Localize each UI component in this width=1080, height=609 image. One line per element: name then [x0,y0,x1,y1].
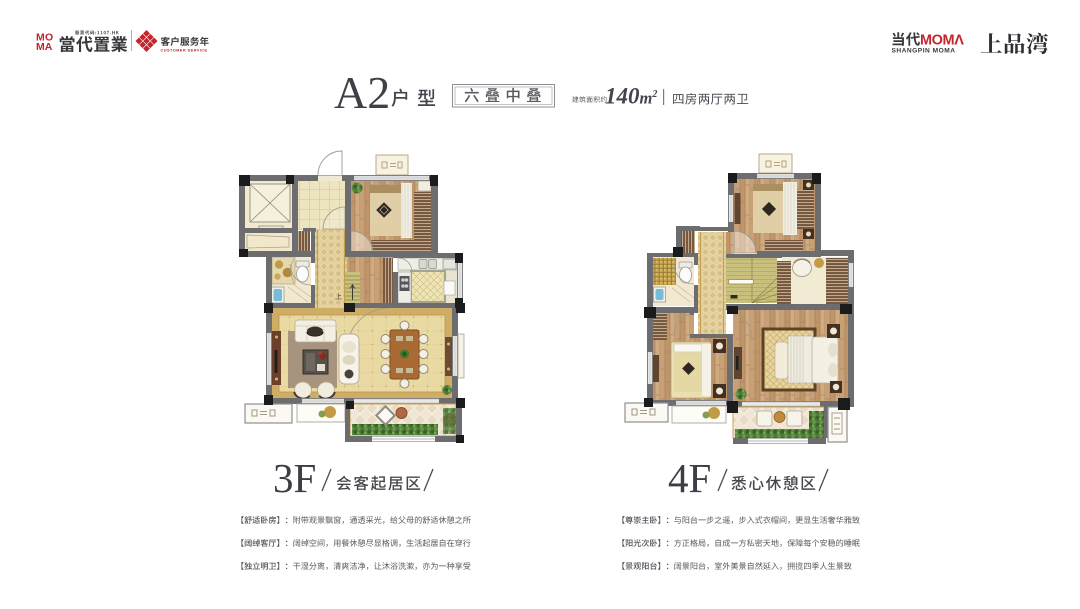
svg-text:CUSTOMER SERVICE: CUSTOMER SERVICE [161,47,208,52]
svg-text:MA: MA [36,41,53,53]
svg-text:A2: A2 [334,67,390,118]
svg-text:140m2: 140m2 [605,84,657,109]
svg-text:3F: 3F [273,455,316,501]
svg-text:4F: 4F [668,455,711,501]
svg-text:MOMΛ: MOMΛ [920,33,964,49]
svg-text:SHANGPIN MOMA: SHANGPIN MOMA [892,47,956,54]
